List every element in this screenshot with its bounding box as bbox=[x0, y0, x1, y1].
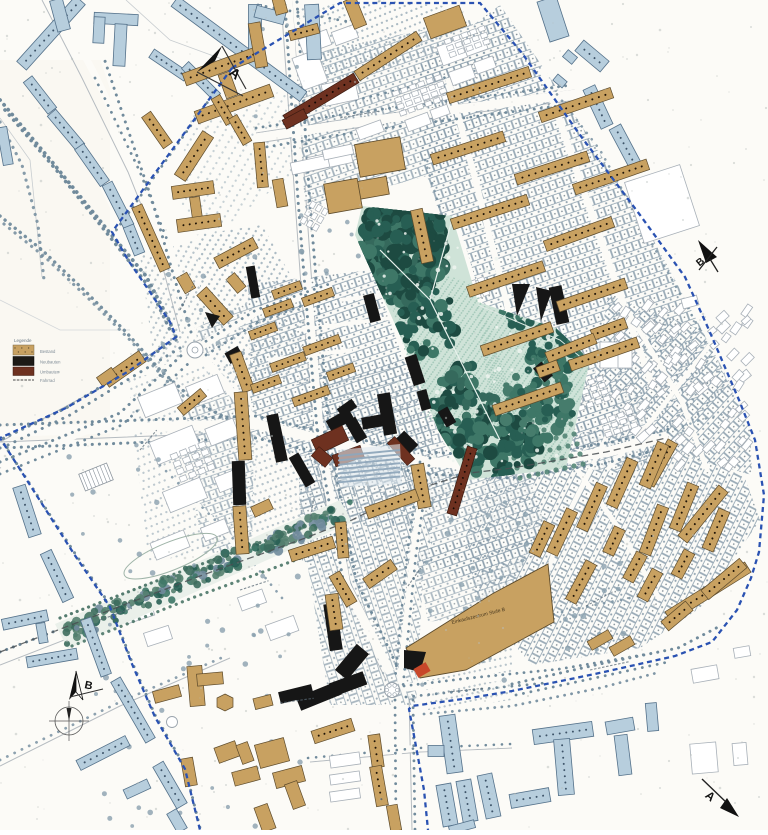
svg-text:Umbauten: Umbauten bbox=[40, 370, 60, 375]
svg-text:Neubauten: Neubauten bbox=[40, 360, 61, 365]
svg-text:Fahrrad: Fahrrad bbox=[40, 378, 55, 383]
svg-text:Legende: Legende bbox=[14, 338, 32, 343]
svg-text:Bestand: Bestand bbox=[40, 349, 56, 354]
